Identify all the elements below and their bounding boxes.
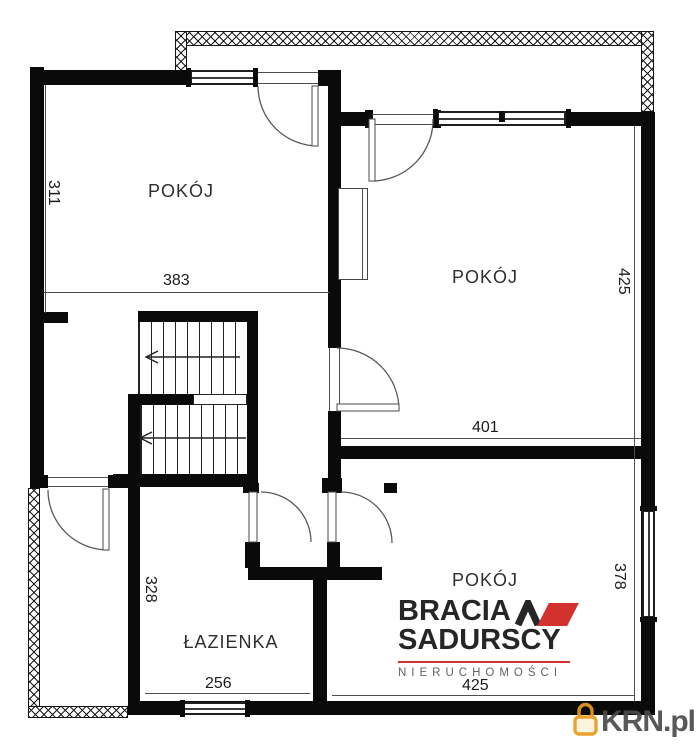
stairs-landing [193, 394, 247, 405]
door-leaf-right-room [369, 119, 375, 181]
wall-stairs-right [247, 311, 258, 483]
window-cap [433, 109, 438, 128]
window-top-left-room [190, 70, 258, 85]
balcony-door-opening-line [48, 486, 108, 487]
door-leaf-middle-wall [337, 404, 399, 411]
door-leaf-bathroom [249, 492, 257, 542]
door-arc-bottom-room [341, 492, 392, 543]
logo-red-rule [398, 661, 570, 663]
window-cap [186, 68, 191, 87]
padlock-icon [572, 701, 599, 742]
wall-bottom-room-door-stub [327, 542, 340, 569]
wall-right-outer [641, 112, 655, 715]
door-arc-bathroom [261, 492, 311, 542]
door-leaf-balcony [103, 489, 109, 550]
wall-hall-bottom [248, 567, 382, 580]
logo-brand-line2: SADURSCY [398, 626, 561, 655]
stairs-lower-flight [140, 405, 247, 474]
room-label-right: POKÓJ [435, 267, 535, 288]
balcony-hatch-top-right-tail [641, 31, 654, 112]
window-cap [640, 506, 657, 511]
balcony-door-opening-line [48, 477, 108, 478]
window-mullion [499, 111, 505, 122]
top-left-door-opening-line [258, 83, 318, 84]
balcony-hatch-left [28, 488, 40, 708]
wall-balcony-door-stub-right [108, 475, 128, 488]
logo-tagline: NIERUCHOMOŚCI [398, 667, 598, 679]
dim-line-256 [145, 693, 310, 694]
dim-311: 311 [44, 180, 62, 206]
window-cap [566, 109, 571, 128]
wall-left-stub [30, 312, 68, 323]
room-label-bottom: POKÓJ [435, 570, 535, 591]
logo-red-parallelogram [537, 603, 579, 626]
wall-right-room-top-west [341, 112, 367, 126]
window-cap [245, 700, 250, 717]
wall-middle-bottom-cap [322, 478, 342, 493]
dim-256: 256 [205, 675, 232, 693]
roof-caret-icon [515, 600, 573, 626]
wall-bathroom-east-divider [313, 580, 327, 701]
window-cap [640, 617, 657, 622]
right-room-door-opening-line [372, 124, 433, 125]
bottom-room-door-jamb-right [384, 483, 397, 493]
window-cap [253, 68, 258, 87]
wall-middle-lower [328, 411, 341, 483]
wall-bathroom-west [128, 395, 140, 715]
right-room-door-jamb-left [365, 110, 373, 128]
room-label-top-left: POKÓJ [131, 181, 231, 202]
door-arc-top-left-room [258, 86, 318, 146]
dim-line-383 [44, 292, 330, 293]
wall-left-outer [30, 67, 44, 478]
dim-425-bottom: 425 [462, 677, 489, 695]
window-right-wall [642, 510, 655, 618]
logo-brand-line1: BRACIA [398, 597, 511, 626]
balcony-hatch-top [175, 31, 654, 46]
middle-door-opening-line [339, 348, 340, 411]
balcony-hatch-bottom-left [28, 706, 128, 718]
wall-stairs-bottom [113, 474, 258, 487]
dim-401: 401 [472, 419, 499, 437]
shaft-box-inner-line [362, 189, 363, 279]
top-left-door-opening-line [258, 72, 318, 73]
door-leaf-bottom-room [328, 492, 336, 542]
wall-stairs-landing [128, 394, 193, 405]
dim-line-425-bottom [332, 695, 634, 696]
dim-383: 383 [163, 272, 190, 290]
dim-line-401 [341, 438, 641, 439]
dim-425-right: 425 [614, 268, 632, 295]
wall-stairs-top [138, 311, 258, 322]
door-leaf-top-left-room [312, 86, 318, 146]
dim-ext-right [634, 126, 635, 701]
stairs-upper-flight [138, 322, 247, 394]
middle-door-opening-line [329, 348, 330, 411]
watermark-text: KRN.pl [601, 705, 695, 739]
door-arc-balcony [48, 490, 108, 550]
door-arc-right-room [372, 119, 433, 181]
bathroom-door-jamb-top [243, 483, 259, 493]
wall-bathroom-door-stub [245, 542, 260, 568]
window-bathroom [183, 702, 247, 715]
right-room-door-opening-line [372, 114, 433, 115]
wall-divider-right-rooms [341, 446, 648, 459]
dim-328: 328 [141, 576, 159, 603]
agency-logo: BRACIA SADURSCY NIERUCHOMOŚCI [398, 597, 598, 679]
shaft-box [338, 188, 368, 280]
window-cap [180, 700, 185, 717]
floor-plan: POKÓJ POKÓJ POKÓJ ŁAZIENKA 311 383 425 4… [0, 0, 700, 750]
dim-378: 378 [610, 563, 628, 590]
wall-top-left-room [30, 70, 188, 85]
krn-watermark: KRN.pl [572, 701, 695, 742]
door-arc-middle-wall [337, 348, 399, 410]
wall-balcony-door-stub-left [30, 475, 48, 488]
wall-right-room-top-east [570, 112, 641, 126]
room-label-bathroom: ŁAZIENKA [166, 632, 296, 653]
